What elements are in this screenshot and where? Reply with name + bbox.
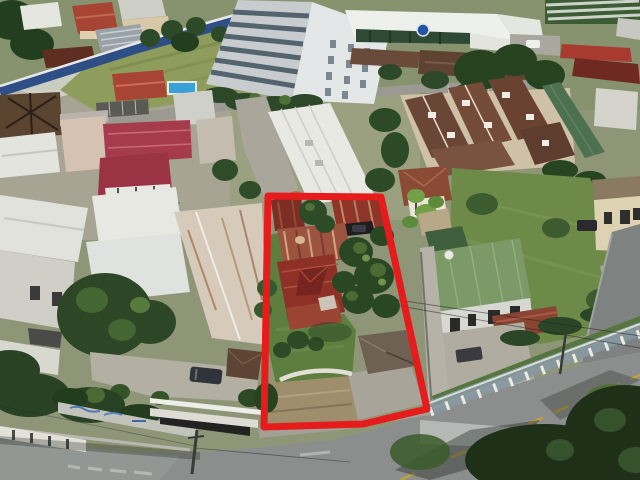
aerial-photo [0,0,640,480]
commercial-logo-emblem [417,24,429,36]
tree-shadow-on-lawn [308,322,352,342]
satellite-dish [445,251,454,260]
aerial-photo-canvas [0,0,640,480]
steel-structure [0,92,62,138]
parked-white-car [526,40,540,48]
car-under-carport [352,225,366,232]
parked-dark-car-right [577,220,597,231]
